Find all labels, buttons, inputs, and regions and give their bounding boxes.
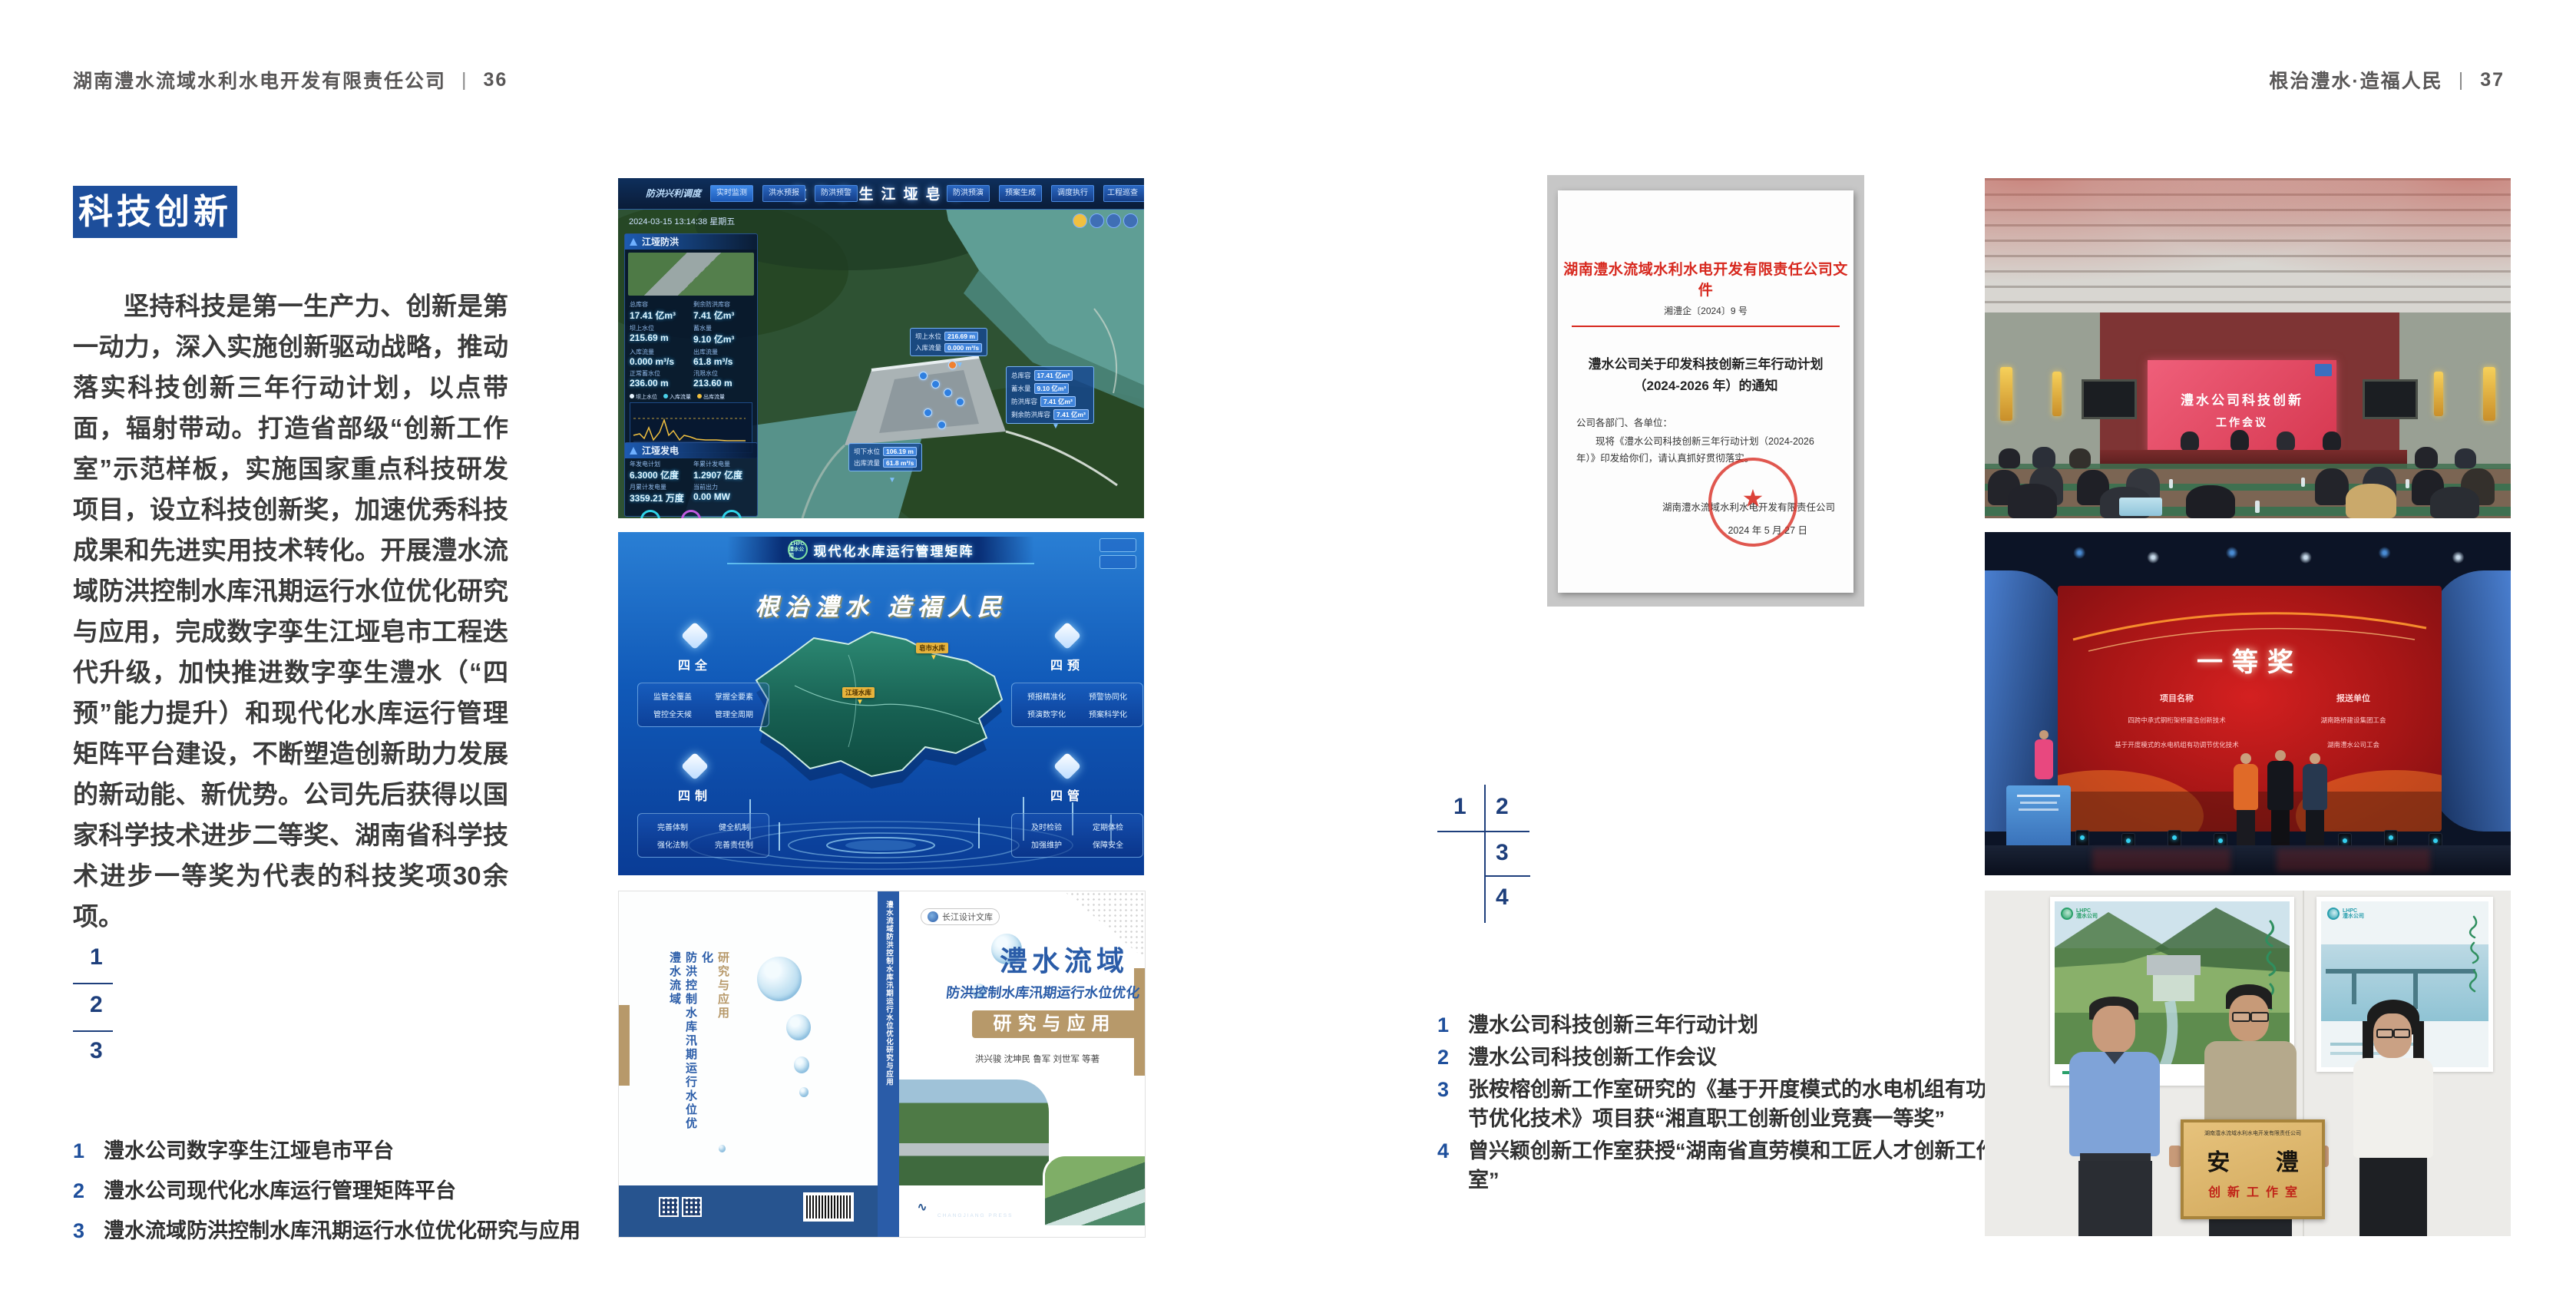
wall-lamp	[2000, 367, 2012, 421]
spine-title: 澧水流域防洪控制水库汛期运行水位优化研究与应用	[883, 901, 894, 1223]
header-right: 根治澧水·造福人民 | 37	[2269, 66, 2505, 94]
water-bottle	[2406, 479, 2409, 488]
audience-silhouette	[2008, 484, 2057, 518]
publisher-name-en: CHANGJIANG PRESS	[937, 1213, 1013, 1218]
worker-marker-icon	[948, 361, 957, 369]
caption-text: 澧水流域防洪控制水库汛期运行水位优化研究与应用	[104, 1216, 580, 1245]
group-title: 四制	[656, 785, 733, 804]
stat-value: 0.000 m³/s	[630, 356, 689, 367]
caption-list-item: 1 澧水公司数字孪生江垭皂市平台	[73, 1136, 610, 1165]
map-pin-icon: ▼	[856, 698, 864, 706]
callout-label: 防洪库容	[1011, 397, 1037, 406]
dashboard-datetime: 2024-03-15 13:14:38 星期五	[629, 215, 735, 227]
stat-label: 剩余防洪库容	[693, 300, 752, 309]
project-row: 基于开度模式的水电机组有功调节优化技术	[2100, 739, 2254, 750]
group-title: 四管	[1029, 785, 1106, 804]
stat-value: 236.00 m	[630, 378, 689, 388]
tab-dispatch-execute[interactable]: 调度执行	[1051, 185, 1094, 202]
figure-award-photo: 一等奖 项目名称 四跨中承式钢桁架桥建造创新技术 基于开度模式的水电机组有功调节…	[1985, 532, 2511, 875]
group-siquan: 四全	[656, 626, 733, 673]
caption-text: 澧水公司现代化水库运行管理矩阵平台	[104, 1176, 456, 1205]
moving-head-light	[2075, 830, 2089, 847]
document-title-line1: 澧水公司关于印发科技创新三年行动计划	[1558, 353, 1853, 372]
company-seal	[1708, 458, 1797, 547]
screen-logo-icon	[2315, 364, 2332, 376]
publisher-name: 长江出版社	[937, 1197, 1013, 1213]
stat-label: 坝上水位	[630, 324, 689, 332]
header-left: 湖南澧水流域水利水电开发有限责任公司 | 36	[73, 66, 508, 94]
audience-silhouette	[2069, 448, 2091, 468]
document-body: 现将《澧水公司科技创新三年行动计划（2024-2026 年）》印发给你们，请认真…	[1576, 433, 1835, 467]
water-bottle	[2169, 479, 2173, 488]
stat-label: 汛限水位	[693, 369, 752, 378]
matrix-slogan: 根治澧水 造福人民	[618, 587, 1144, 622]
callout-value: 61.8 m³/s	[883, 458, 917, 468]
stat-value: 61.8 m³/s	[693, 356, 752, 367]
stat-value: 213.60 m	[693, 378, 752, 388]
stat-label: 月累计发电量	[630, 483, 689, 491]
stat-value: 6.3000 亿度	[630, 468, 689, 481]
panelist-silhouette	[2323, 431, 2341, 451]
project-row: 四跨中承式钢桁架桥建造创新技术	[2100, 715, 2254, 726]
caption-number: 3	[1437, 1075, 1456, 1133]
cube-icon	[681, 752, 709, 781]
group-sizhi: 四制	[656, 756, 733, 804]
caption-number: 2	[73, 1176, 91, 1205]
cube-icon	[1053, 752, 1082, 781]
matrix-item: 加强维护	[1020, 838, 1073, 850]
figure-index-1: 1	[1453, 794, 1467, 820]
figure-group-photo: LHPC澧水公司 LHPC澧水公司	[1985, 891, 2511, 1236]
matrix-item: 预报精准化	[1020, 690, 1073, 702]
book-authors: 洪兴骏 沈坤民 鲁军 刘世军 等著	[941, 1053, 1133, 1065]
org-row: 湖南路桥建设集团工会	[2288, 715, 2419, 726]
water-drop-graphic	[757, 957, 802, 1001]
award-org-column: 报送单位 湖南路桥建设集团工会 湖南澧水公司工会	[2288, 693, 2419, 750]
caption-number: 3	[73, 1216, 91, 1245]
callout-label: 蓄水量	[1011, 384, 1031, 393]
panel-title: 江垭发电	[625, 443, 757, 458]
matrix-item: 管控全天候	[646, 708, 699, 719]
chart-legend: 坝上水位 入库流量 出库流量	[625, 392, 757, 402]
dam-photo	[899, 1080, 1049, 1185]
gate-marker-icon[interactable]	[924, 408, 932, 417]
caption-number: 2	[1437, 1043, 1456, 1072]
lhpc-logo-icon	[2327, 908, 2340, 920]
power-stats-grid: 年发电计划6.3000 亿度 年累计发电量1.2907 亿度 月累计发电量335…	[625, 458, 757, 508]
cube-icon	[1053, 622, 1082, 650]
index-divider	[73, 1030, 113, 1032]
screen-subtitle: 工作会议	[2148, 415, 2336, 430]
column-header: 项目名称	[2100, 693, 2254, 704]
back-tan-bar	[619, 1005, 630, 1086]
ceiling	[1985, 178, 2511, 312]
matrix-item: 掌握全要素	[707, 690, 761, 702]
caption-list-item: 2 澧水公司科技创新工作会议	[1437, 1043, 2021, 1072]
caption-list-item: 3 澧水流域防洪控制水库汛期运行水位优化研究与应用	[73, 1216, 610, 1245]
figure-index-3: 3	[1496, 840, 1509, 866]
caption-list-item: 4 曾兴颖创新工作室获授“湖南省直劳模和工匠人才创新工作室”	[1437, 1136, 2021, 1195]
callout-downstream: 坝下水位106.19 m 出库流量61.8 m³/s	[848, 443, 922, 471]
callout-caret: ▼	[888, 476, 896, 484]
book-title-band: 研究与应用	[972, 1010, 1137, 1038]
wall-tv	[2363, 379, 2418, 419]
person-white-tee	[2344, 1000, 2442, 1236]
water-bottle	[2301, 478, 2305, 487]
alert-icon[interactable]	[1090, 213, 1104, 228]
tab-plan-generation[interactable]: 预案生成	[999, 185, 1042, 202]
reflective-floor	[1985, 845, 2511, 875]
group-siguan: 四管	[1029, 756, 1106, 804]
plaque-subtitle: 创新工作室	[2184, 1182, 2322, 1200]
book-title-sub: 防洪控制水库汛期运行水位优化	[944, 982, 1143, 1002]
callout-label: 总库容	[1011, 371, 1031, 380]
audience-silhouette	[2415, 447, 2438, 468]
callout-value: 7.41 亿m³	[1040, 396, 1076, 407]
matrix-item: 定期体检	[1081, 821, 1135, 832]
wall-lamp	[2483, 367, 2495, 421]
figure-meeting-photo: 澧水公司科技创新 工作会议	[1985, 178, 2511, 518]
index-divider	[1437, 831, 1529, 832]
person-blue-polo	[2062, 997, 2169, 1236]
map-label-zaoshi[interactable]: 皂市水库	[916, 643, 948, 653]
caption-list-item: 2 澧水公司现代化水库运行管理矩阵平台	[73, 1176, 610, 1205]
matrix-item: 预警协同化	[1081, 690, 1135, 702]
audience-silhouette	[1999, 448, 2020, 468]
caption-text: 澧水公司数字孪生江垭皂市平台	[104, 1136, 394, 1165]
tab-flood-warning[interactable]: 防洪预警	[815, 185, 858, 202]
calligraphy-strokes	[2465, 914, 2482, 998]
callout-value: 106.19 m	[883, 447, 917, 456]
caption-number: 4	[1437, 1136, 1456, 1195]
panel-jiangya-flood: 江垭防洪 总库容17.41 亿m³ 剩余防洪库容7.41 亿m³ 坝上水位215…	[624, 233, 758, 458]
company-name: 湖南澧水流域水利水电开发有限责任公司	[73, 66, 446, 94]
panel-siyu: 预报精准化 预警协同化 预演数字化 预案科学化	[1011, 683, 1143, 727]
caption-text: 澧水公司科技创新工作会议	[1468, 1043, 1717, 1072]
group-title: 四预	[1029, 655, 1106, 673]
legend-item: 入库流量	[670, 395, 691, 400]
matrix-item: 预案科学化	[1081, 708, 1135, 719]
matrix-item: 管理全周期	[707, 708, 761, 719]
index-divider-vertical	[1484, 785, 1486, 923]
back-title-line: 澧水流域	[666, 951, 683, 1136]
caption-list-item: 3 张桉榕创新工作室研究的《基于开度模式的水电机组有功调节优化技术》项目获“湘直…	[1437, 1075, 2013, 1133]
series-name: 长江设计文库	[942, 911, 993, 923]
dashboard-mode-label: 防洪兴利调度	[646, 187, 701, 200]
stat-value: 7.41 亿m³	[693, 309, 752, 322]
callout-value: 9.10 亿m³	[1034, 383, 1070, 394]
panel-siguan: 及时检验 定期体检 加强维护 保障安全	[1011, 813, 1143, 858]
book-title-main: 澧水流域	[991, 939, 1137, 979]
header-separator: |	[461, 69, 468, 91]
qr-code	[659, 1197, 679, 1217]
moving-head-light	[2168, 830, 2181, 847]
callout-label: 剩余防洪库容	[1011, 410, 1050, 419]
gate-marker-icon[interactable]	[931, 380, 940, 388]
caption-text: 曾兴颖创新工作室获授“湖南省直劳模和工匠人才创新工作室”	[1468, 1136, 2021, 1195]
panel-sizhi: 完善体制 健全机制 强化法制 完善责任制	[637, 813, 769, 858]
callout-value: 17.41 亿m³	[1034, 370, 1073, 381]
press-globe-icon	[928, 911, 938, 922]
gate-marker-icon[interactable]	[937, 421, 946, 429]
stat-value: 3359.21 万度	[630, 491, 689, 504]
stat-label: 入库流量	[630, 348, 689, 356]
series-logo: 长江设计文库	[921, 908, 1000, 925]
stat-label: 蓄水量	[693, 324, 752, 332]
tab-flood-forecast[interactable]: 洪水预报	[762, 185, 805, 202]
audience-silhouette	[2186, 485, 2235, 518]
plaque-org-line: 湖南澧水流域水利水电开发有限责任公司	[2184, 1129, 2322, 1137]
matrix-title: 现代化水库运行管理矩阵	[814, 541, 974, 560]
panelist-silhouette	[2230, 430, 2249, 451]
page-number-right: 37	[2480, 69, 2505, 91]
figure-index-2: 2	[90, 992, 103, 1018]
index-divider	[1484, 875, 1530, 877]
document-paper: 湖南澧水流域水利水电开发有限责任公司文件 湘澧企〔2024〕9 号 澧水公司关于…	[1558, 190, 1853, 593]
back-title-line: 研究与应用	[715, 951, 731, 1136]
brochure-spread: 湖南澧水流域水利水电开发有限责任公司 | 36 根治澧水·造福人民 | 37 科…	[0, 0, 2576, 1306]
tab-project-inspect[interactable]: 工程巡查	[1103, 185, 1144, 202]
audience-silhouette-tan-coat	[2346, 484, 2396, 518]
document-salutation: 公司各部门、各单位：	[1576, 415, 1835, 431]
group-siyu: 四预	[1029, 626, 1106, 673]
matrix-item: 完善责任制	[707, 838, 761, 850]
moving-head-light	[2384, 830, 2398, 847]
wall-tv	[2082, 379, 2137, 419]
page-number-left: 36	[484, 69, 508, 91]
powerhouse-photo	[1045, 1156, 1145, 1225]
caption-list-item: 1 澧水公司科技创新三年行动计划	[1437, 1010, 2021, 1040]
matrix-item: 强化法制	[646, 838, 699, 850]
stat-label: 总库容	[630, 300, 689, 309]
settings-icon[interactable]	[1106, 213, 1121, 228]
matrix-item: 监管全覆盖	[646, 690, 699, 702]
tab-realtime-monitor[interactable]: 实时监测	[710, 185, 753, 202]
isbn-barcode	[803, 1192, 854, 1222]
figure-index-2: 2	[1496, 794, 1509, 820]
award-screen-title: 一等奖	[2058, 641, 2442, 679]
org-row: 湖南澧水公司工会	[2288, 739, 2419, 750]
index-divider	[73, 983, 113, 984]
stat-value: 17.41 亿m³	[630, 309, 689, 322]
cube-icon	[681, 622, 709, 650]
callout-value: 7.41 亿m³	[1053, 409, 1089, 420]
book-front-cover: 长江设计文库 澧水流域 防洪控制水库汛期运行水位优化 研究与应用 洪兴骏 沈坤民…	[899, 891, 1145, 1237]
stat-value: 215.69 m	[630, 332, 689, 343]
publisher-logo-icon: ∿	[913, 1199, 931, 1217]
qr-code	[682, 1197, 702, 1217]
callout-caret: ▼	[956, 361, 964, 369]
roam-button[interactable]	[1100, 555, 1136, 569]
stat-value: 1.2907 亿度	[693, 468, 752, 481]
stage-side-panel-right	[2430, 570, 2511, 832]
back-vertical-title: 澧水流域 防洪控制水库汛期运行水位优化 研究与应用	[666, 951, 731, 1136]
generator-gauges: 0.00 100.98 0.00	[625, 508, 757, 518]
matrix-item: 保障安全	[1081, 838, 1135, 850]
gate-marker-icon[interactable]	[956, 398, 964, 406]
water-drop-graphic	[799, 1087, 809, 1097]
panel-jiangya-power: 江垭发电 年发电计划6.3000 亿度 年累计发电量1.2907 亿度 月累计发…	[624, 442, 758, 517]
audience-silhouette	[2032, 447, 2055, 468]
legend-item: 坝上水位	[636, 395, 657, 400]
stat-label: 当前出力	[693, 483, 752, 491]
stat-label: 年发电计划	[630, 460, 689, 468]
figure-book-cover: 澧水流域 防洪控制水库汛期运行水位优化 研究与应用 澧水流域防洪控制水库汛期运行…	[618, 891, 1146, 1238]
caption-text: 澧水公司科技创新三年行动计划	[1468, 1010, 1758, 1040]
header-separator: |	[2459, 69, 2465, 91]
water-drop-graphic	[719, 1145, 726, 1152]
matrix-item: 及时检验	[1020, 821, 1073, 832]
stat-value: 0.00 MW	[693, 491, 752, 502]
book-spine: 澧水流域防洪控制水库汛期运行水位优化研究与应用	[878, 891, 899, 1237]
document-title-line2: （2024-2026 年）的通知	[1558, 375, 1853, 394]
panelist-silhouette	[2277, 431, 2295, 451]
callout-value: 0.000 m³/s	[944, 343, 982, 352]
plaque-name: 安 澧	[2184, 1143, 2322, 1177]
audience-silhouette	[2430, 487, 2479, 518]
figure-digital-twin-platform: 数字孪生江垭皂市 防洪兴利调度 实时监测 洪水预报 防洪预警 防洪预演 预案生成…	[618, 178, 1144, 518]
document-header: 湖南澧水流域水利水电开发有限责任公司文件	[1558, 258, 1853, 299]
stage-truss-lights	[1985, 532, 2511, 578]
matrix-item: 健全机制	[707, 821, 761, 832]
water-drop-graphic	[786, 1014, 811, 1040]
publisher-block: ∿ 长江出版社 CHANGJIANG PRESS	[913, 1197, 1013, 1218]
section-paragraph: 坚持科技是第一生产力、创新是第一动力，深入实施创新驱动战略，推动落实科技创新三年…	[73, 286, 508, 937]
tab-flood-rehearsal[interactable]: 防洪预演	[947, 185, 990, 202]
slogan: 根治澧水·造福人民	[2269, 66, 2442, 94]
gate-marker-icon[interactable]	[944, 388, 952, 397]
caption-text: 张桉榕创新工作室研究的《基于开度模式的水电机组有功调节优化技术》项目获“湘直职工…	[1468, 1075, 2013, 1133]
fullscreen-button[interactable]	[1100, 538, 1136, 552]
callout-label: 坝下水位	[854, 447, 880, 456]
water-bottle	[2255, 501, 2260, 513]
callout-label: 坝上水位	[915, 332, 941, 341]
screen-title: 澧水公司科技创新	[2148, 389, 2336, 408]
user-icon[interactable]	[1073, 213, 1087, 228]
figure-index-1: 1	[90, 944, 103, 970]
stat-label: 正常蓄水位	[630, 369, 689, 378]
document-red-rule	[1572, 326, 1840, 327]
stat-label: 年累计发电量	[693, 460, 752, 468]
lhpc-poster-logo: LHPC澧水公司	[2061, 908, 2098, 920]
matrix-item: 完善体制	[646, 821, 699, 832]
figure-official-document: 湖南澧水流域水利水电开发有限责任公司文件 湘澧企〔2024〕9 号 澧水公司关于…	[1547, 175, 1864, 607]
callout-capacity: 总库容17.41 亿m³ 蓄水量9.10 亿m³ 防洪库容7.41 亿m³ 剩余…	[1006, 366, 1094, 424]
callout-value: 216.69 m	[944, 332, 978, 341]
stat-label: 出库流量	[693, 348, 752, 356]
panel-title: 江垭防洪	[625, 234, 757, 250]
figure-matrix-platform: LHPC澧水公司 现代化水库运行管理矩阵 根治澧水 造福人民 四全 监管全覆盖 …	[618, 532, 1144, 875]
hand-left	[2169, 1146, 2181, 1167]
stat-value: 9.10 亿m³	[693, 332, 752, 346]
figure-index-3: 3	[90, 1038, 103, 1064]
group-title: 四全	[656, 655, 733, 673]
wall-lamp	[2052, 372, 2062, 416]
caption-number: 1	[73, 1136, 91, 1165]
dam-thumbnail-photo	[628, 253, 754, 296]
matrix-header: LHPC澧水公司 现代化水库运行管理矩阵	[727, 537, 1034, 564]
map-label-jiangya[interactable]: 江垭水库	[842, 687, 875, 698]
column-header: 报送单位	[2288, 693, 2419, 704]
caption-number: 1	[1437, 1010, 1456, 1040]
callout-label: 入库流量	[915, 343, 941, 352]
panel-siquan: 监管全覆盖 掌握全要素 管控全天候 管理全周期	[637, 683, 769, 727]
gate-marker-icon[interactable]	[919, 372, 928, 380]
tissue-box	[2119, 498, 2162, 516]
matrix-item: 预演数字化	[1020, 708, 1073, 719]
figure-index-4: 4	[1496, 884, 1509, 911]
callout-caret: ▼	[1052, 422, 1060, 431]
legend-item: 出库流量	[703, 395, 725, 400]
callout-label: 出库流量	[854, 458, 880, 468]
layers-icon[interactable]	[1123, 213, 1138, 228]
map-pin-icon: ▼	[930, 653, 937, 662]
back-title-line: 防洪控制水库汛期运行水位优化	[683, 951, 715, 1136]
water-drop-graphic	[794, 1056, 809, 1073]
audience-silhouette	[2315, 468, 2349, 505]
lhpc-logo: LHPC澧水公司	[788, 540, 808, 560]
lhpc-poster-logo: LHPC澧水公司	[2327, 908, 2364, 920]
wall-lamp	[2434, 372, 2443, 416]
innovation-studio-plaque: 湖南澧水流域水利水电开发有限责任公司 安 澧 创新工作室	[2181, 1119, 2325, 1219]
award-project-column: 项目名称 四跨中承式钢桁架桥建造创新技术 基于开度模式的水电机组有功调节优化技术	[2100, 693, 2254, 750]
lhpc-logo-icon	[2061, 908, 2073, 920]
audience-silhouette	[2455, 448, 2476, 468]
flood-stats-grid: 总库容17.41 亿m³ 剩余防洪库容7.41 亿m³ 坝上水位215.69 m…	[625, 299, 757, 392]
section-title: 科技创新	[73, 186, 237, 238]
document-number: 湘澧企〔2024〕9 号	[1558, 304, 1853, 317]
callout-upstream-level: 坝上水位216.69 m 入库流量0.000 m³/s	[910, 328, 987, 356]
panelist-silhouette	[2181, 431, 2199, 451]
